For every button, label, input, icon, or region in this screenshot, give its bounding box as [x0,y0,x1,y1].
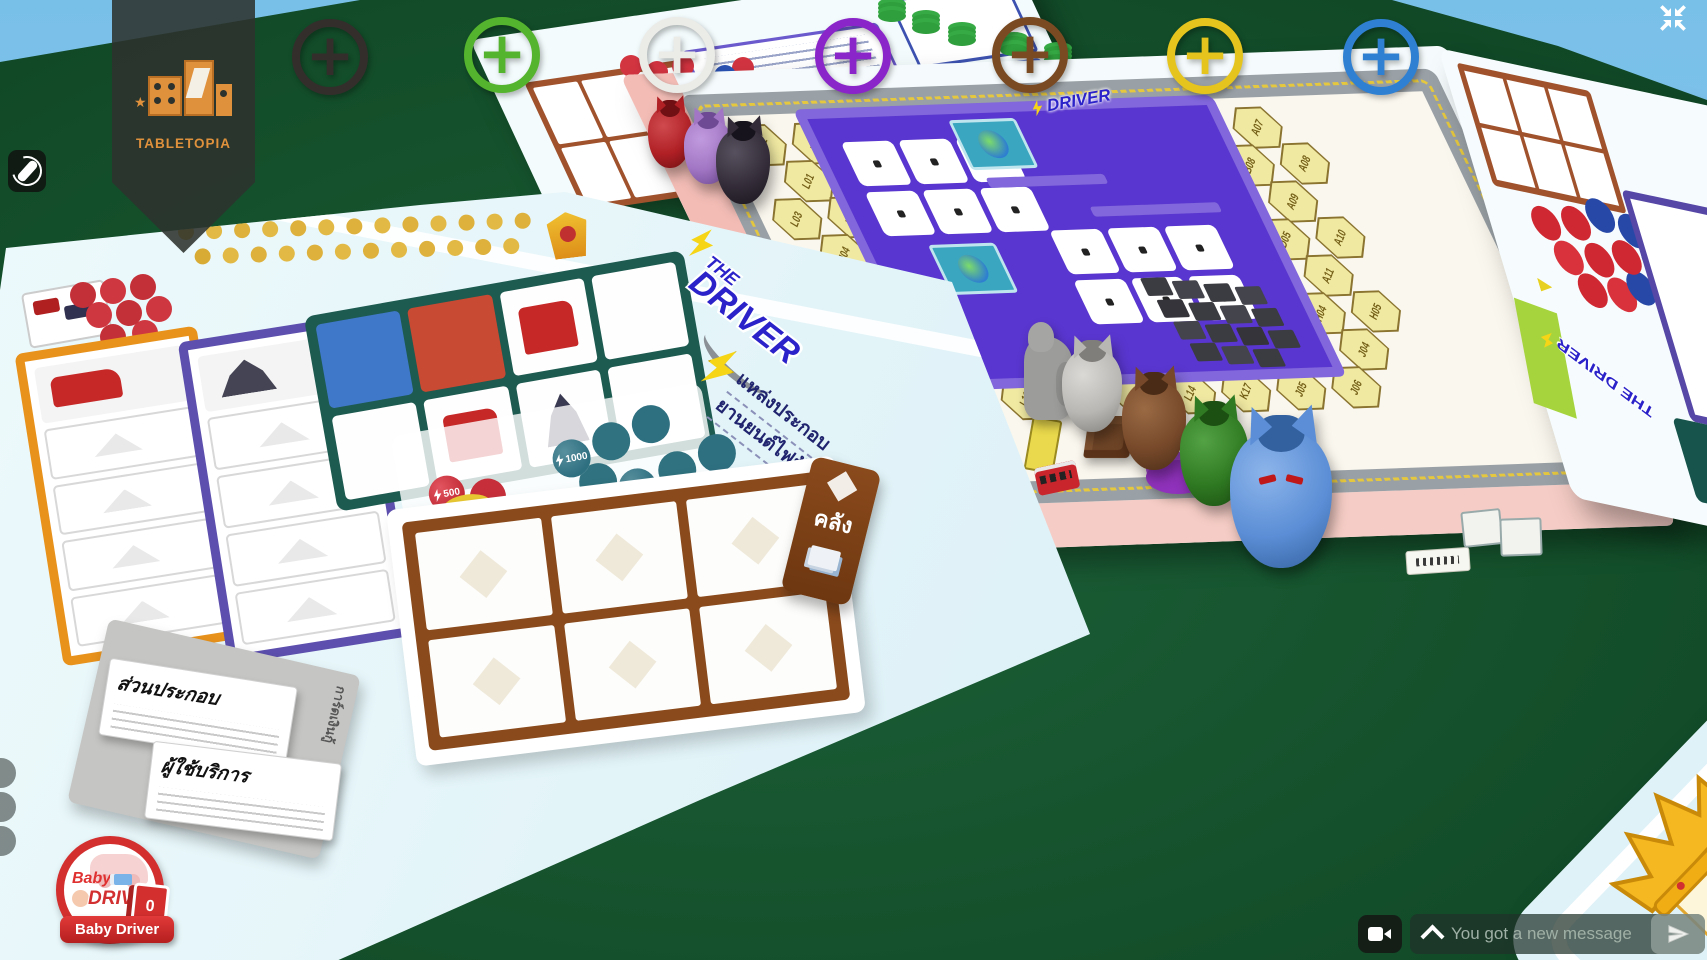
seat-green[interactable]: + [464,17,540,93]
right-board-chips[interactable] [1527,203,1565,243]
road-sign-white [1405,547,1471,575]
tabletopia-logo-icon: ★ [134,42,234,134]
seat-purple[interactable]: + [815,18,891,94]
exit-fullscreen-icon[interactable] [1656,2,1690,34]
seat-brown[interactable]: + [992,17,1068,93]
cards-icon [807,545,841,572]
storage-panel [386,455,866,766]
bag-face [1259,476,1304,501]
camera-button[interactable] [1358,915,1402,953]
red-chip-cluster[interactable] [70,282,96,308]
seat-white[interactable]: + [639,17,715,93]
factory-card-slots[interactable] [1049,225,1259,325]
market-card[interactable] [407,294,506,393]
green-chip-stack[interactable] [878,10,906,22]
market-card[interactable] [499,278,598,377]
zone-label-strip [1090,202,1223,217]
green-chip-stack[interactable] [912,22,940,34]
grab-tool-button[interactable] [8,150,46,192]
chevron-up-icon[interactable] [1420,924,1444,948]
right-board-card-grid [1456,63,1626,214]
tabletopia-game-stage: K01K02K03K04A02A03A04A05A06A07L01L02K05K… [0,0,1707,960]
diamond-icon [827,471,857,501]
lightning-icon [555,453,565,467]
player-badge-group: Baby DRIVER 0 Baby Driver [52,832,182,952]
seat-black[interactable]: + [292,19,368,95]
milk-bottle-icon [114,874,132,885]
green-chip-stack[interactable] [948,34,976,46]
video-camera-icon [1368,925,1392,943]
chat-input-bar[interactable]: You got a new message [1410,914,1705,954]
storage-grid[interactable] [402,471,851,751]
score-tile[interactable] [1499,517,1542,556]
send-button[interactable] [1651,914,1705,954]
paper-plane-icon [1665,923,1691,945]
right-board-green-area [1672,417,1707,537]
tabletopia-logo-text: TABLETOPIA [112,136,255,151]
lightning-icon [433,488,443,502]
mat-emblem [545,210,590,261]
score-tile[interactable] [1460,508,1504,548]
flag-token[interactable] [1537,278,1554,294]
seat-yellow[interactable]: + [1167,18,1243,94]
star-icon: ★ [134,94,147,111]
market-card[interactable] [591,262,690,361]
seat-blue[interactable]: + [1343,19,1419,95]
player-name-label: Baby Driver [60,916,174,943]
lightning-icon [1031,99,1044,116]
market-card[interactable] [315,310,414,409]
baby-face-icon [72,890,89,907]
coin-1000[interactable]: 1000 [550,436,594,480]
chat-placeholder: You got a new message [1451,924,1651,944]
